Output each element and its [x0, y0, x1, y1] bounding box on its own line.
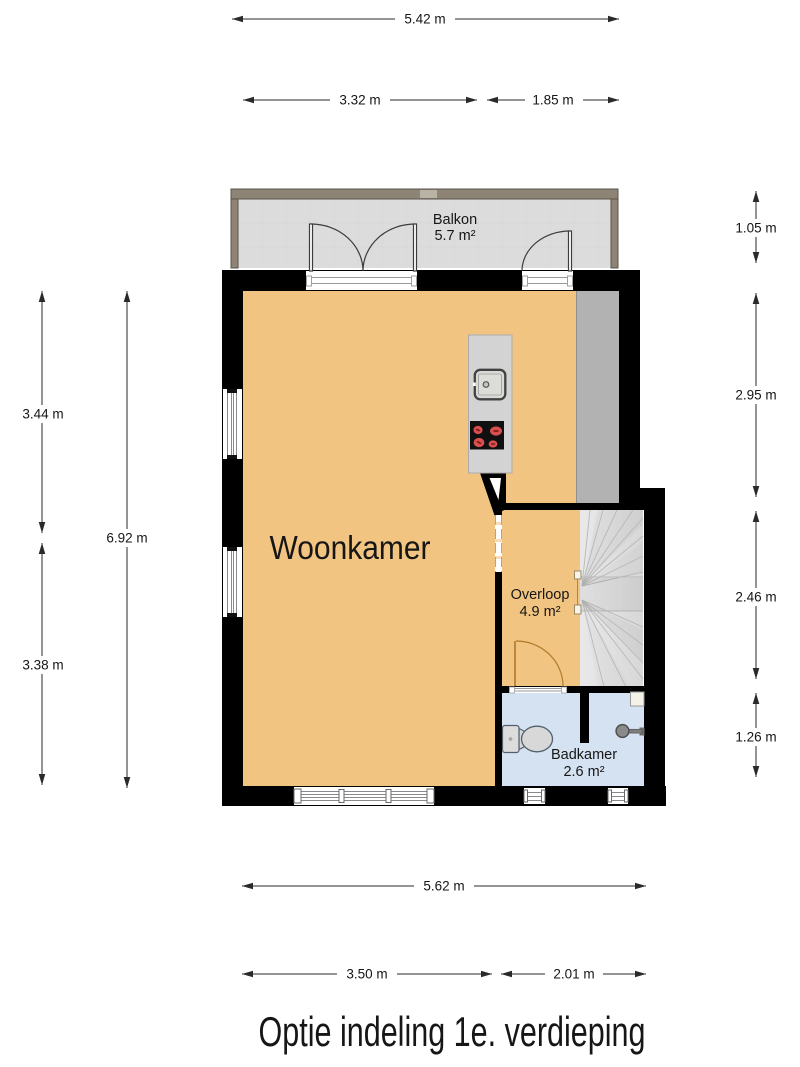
svg-text:Badkamer: Badkamer: [551, 747, 617, 763]
svg-text:1.85 m: 1.85 m: [532, 93, 573, 108]
svg-text:3.32 m: 3.32 m: [339, 93, 380, 108]
svg-text:Optie indeling 1e. verdieping: Optie indeling 1e. verdieping: [259, 1008, 646, 1055]
svg-text:3.50 m: 3.50 m: [346, 967, 387, 982]
svg-text:5.62 m: 5.62 m: [423, 879, 464, 894]
svg-text:1.26 m: 1.26 m: [735, 730, 776, 745]
svg-text:3.38 m: 3.38 m: [22, 658, 63, 673]
svg-text:6.92 m: 6.92 m: [106, 531, 147, 546]
svg-text:1.05 m: 1.05 m: [735, 221, 776, 236]
svg-text:2.6 m²: 2.6 m²: [563, 764, 604, 780]
svg-text:2.46 m: 2.46 m: [735, 590, 776, 605]
svg-text:5.7 m²: 5.7 m²: [434, 228, 475, 244]
svg-text:Woonkamer: Woonkamer: [270, 529, 431, 566]
svg-text:4.9 m²: 4.9 m²: [519, 604, 560, 620]
svg-text:2.01 m: 2.01 m: [553, 967, 594, 982]
svg-text:2.95 m: 2.95 m: [735, 388, 776, 403]
svg-text:Overloop: Overloop: [511, 587, 570, 603]
svg-text:3.44 m: 3.44 m: [22, 407, 63, 422]
svg-text:Balkon: Balkon: [433, 212, 477, 228]
svg-text:5.42 m: 5.42 m: [404, 12, 445, 27]
